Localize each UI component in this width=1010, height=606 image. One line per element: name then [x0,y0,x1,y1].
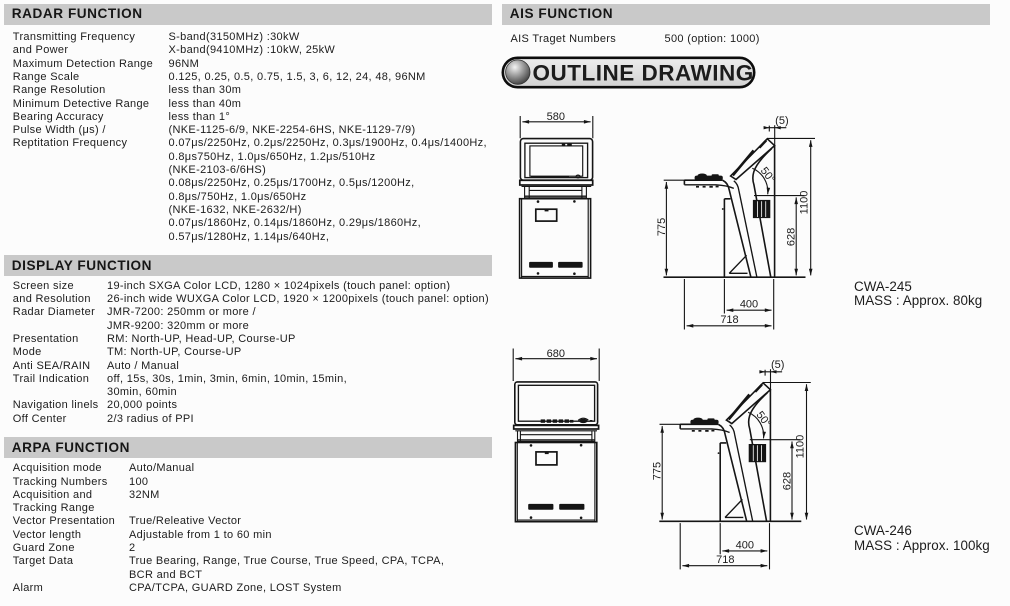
svg-text:680: 680 [547,348,565,360]
svg-text:(5): (5) [775,115,788,127]
svg-text:OUTLINE DRAWING: OUTLINE DRAWING [533,60,754,85]
svg-text:718: 718 [720,314,738,326]
svg-text:400: 400 [736,539,754,551]
svg-text:580: 580 [547,111,565,123]
svg-text:628: 628 [786,228,798,246]
svg-text:1100: 1100 [799,191,811,215]
svg-text:718: 718 [716,554,734,566]
svg-text:400: 400 [740,299,758,311]
svg-text:775: 775 [656,218,668,236]
